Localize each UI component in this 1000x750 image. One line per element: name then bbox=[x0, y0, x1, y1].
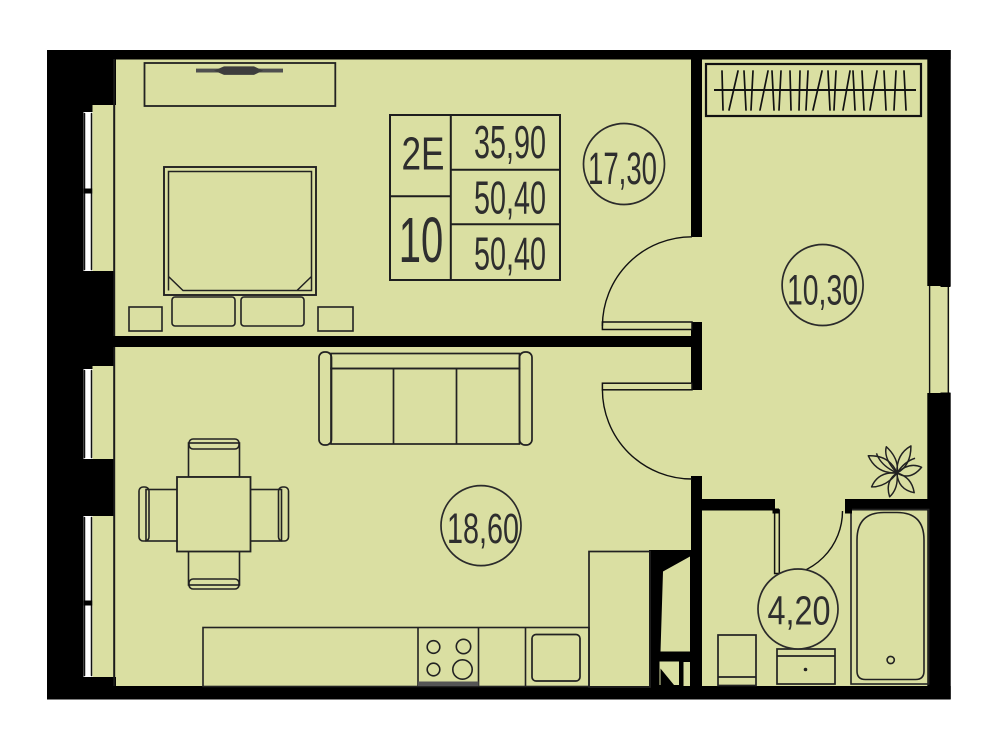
svg-text:2E: 2E bbox=[402, 128, 445, 180]
svg-text:4,20: 4,20 bbox=[768, 588, 831, 634]
svg-text:18,60: 18,60 bbox=[447, 505, 519, 553]
svg-text:10: 10 bbox=[399, 204, 444, 276]
svg-text:50,40: 50,40 bbox=[474, 172, 546, 224]
svg-text:35,90: 35,90 bbox=[474, 116, 546, 168]
svg-text:50,40: 50,40 bbox=[474, 228, 546, 280]
svg-text:17,30: 17,30 bbox=[588, 143, 657, 194]
svg-text:10,30: 10,30 bbox=[787, 267, 858, 315]
